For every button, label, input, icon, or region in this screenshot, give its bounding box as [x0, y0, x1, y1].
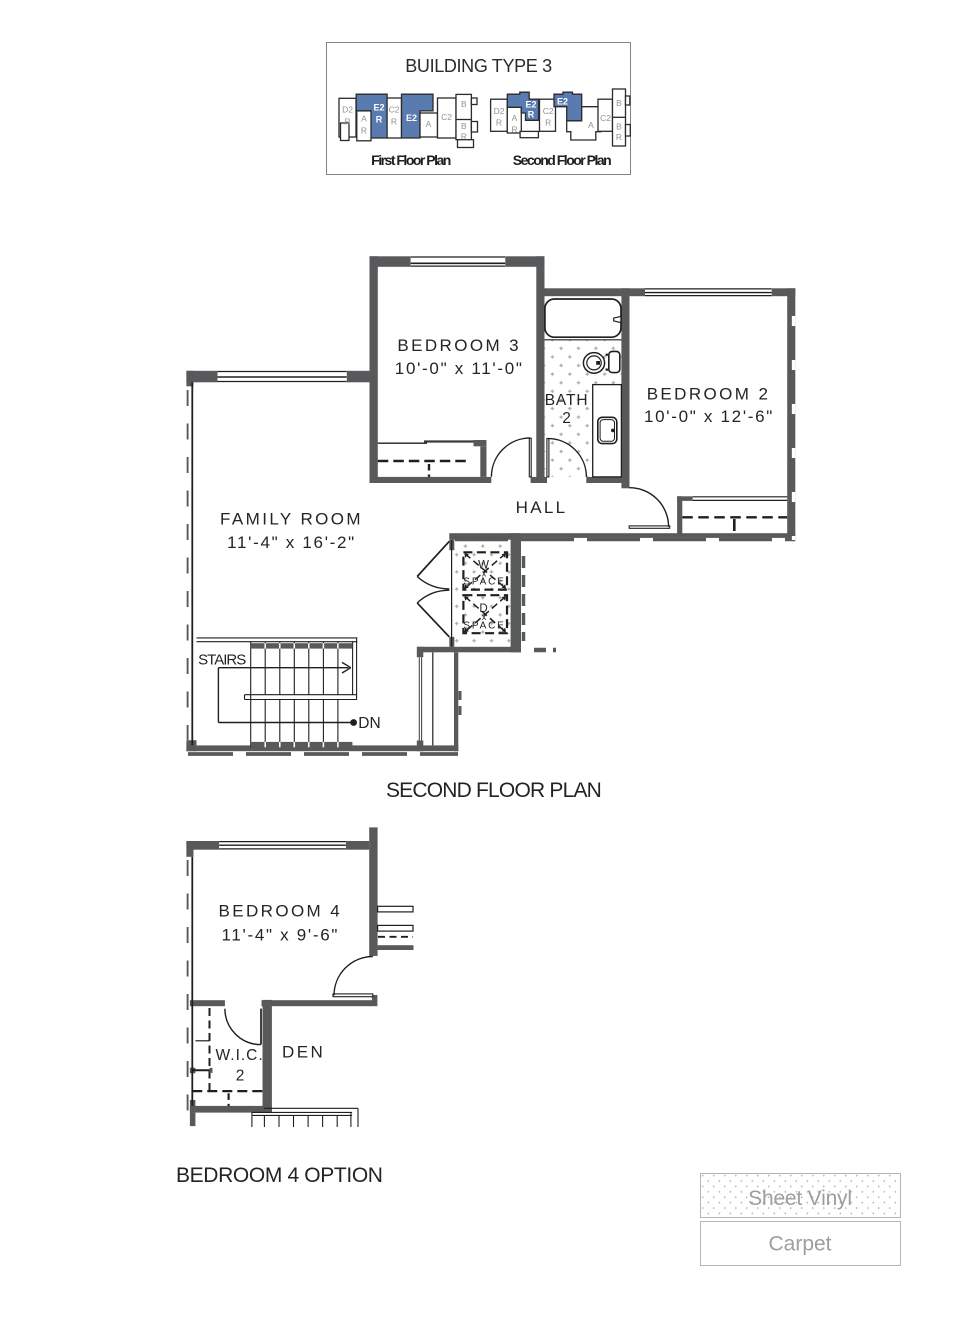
- svg-text:BATH: BATH: [545, 392, 589, 409]
- svg-text:E2: E2: [557, 97, 568, 107]
- svg-text:C2: C2: [543, 106, 554, 116]
- svg-text:D2: D2: [342, 105, 353, 115]
- svg-text:HALL: HALL: [516, 498, 568, 517]
- svg-text:R: R: [344, 117, 350, 127]
- svg-text:D2: D2: [494, 106, 505, 116]
- svg-text:E2: E2: [406, 113, 417, 123]
- svg-text:R: R: [391, 117, 397, 127]
- svg-text:B: B: [461, 121, 467, 131]
- svg-text:R: R: [616, 132, 622, 142]
- svg-text:SPACE: SPACE: [463, 577, 505, 588]
- svg-text:A: A: [426, 119, 432, 129]
- svg-text:E2: E2: [525, 100, 536, 110]
- svg-text:W.I.C.: W.I.C.: [215, 1047, 263, 1064]
- svg-text:R: R: [528, 110, 535, 120]
- svg-text:BEDROOM 2: BEDROOM 2: [647, 384, 771, 403]
- svg-text:10'-0" x 11'-0": 10'-0" x 11'-0": [395, 359, 524, 378]
- svg-text:R: R: [461, 132, 467, 142]
- svg-text:BEDROOM 4: BEDROOM 4: [218, 901, 342, 920]
- svg-text:BEDROOM 3: BEDROOM 3: [397, 336, 521, 355]
- svg-text:Carpet: Carpet: [768, 1233, 831, 1256]
- svg-text:R: R: [496, 118, 502, 128]
- svg-text:C2: C2: [600, 113, 611, 123]
- svg-text:C2: C2: [389, 105, 400, 115]
- svg-text:SPACE: SPACE: [463, 621, 505, 632]
- svg-text:FAMILY ROOM: FAMILY ROOM: [220, 510, 363, 529]
- svg-text:11'-4" x 16'-2": 11'-4" x 16'-2": [227, 533, 356, 552]
- svg-text:B: B: [461, 99, 467, 109]
- svg-text:2: 2: [236, 1067, 245, 1084]
- svg-text:R: R: [511, 125, 517, 135]
- svg-text:A: A: [588, 120, 594, 130]
- svg-text:STAIRS: STAIRS: [198, 652, 246, 669]
- svg-text:B: B: [616, 98, 622, 108]
- svg-text:R: R: [376, 115, 383, 125]
- svg-text:A: A: [361, 114, 367, 124]
- svg-text:E2: E2: [373, 103, 384, 113]
- svg-text:R: R: [361, 126, 367, 136]
- svg-text:DEN: DEN: [282, 1043, 325, 1062]
- svg-text:B: B: [616, 122, 622, 132]
- svg-text:C2: C2: [441, 112, 452, 122]
- svg-text:DN: DN: [358, 715, 380, 732]
- svg-text:2: 2: [562, 410, 571, 427]
- svg-text:A: A: [512, 113, 518, 123]
- svg-text:10'-0" x 12'-6": 10'-0" x 12'-6": [644, 407, 774, 426]
- svg-text:R: R: [545, 118, 551, 128]
- svg-text:Sheet Vinyl: Sheet Vinyl: [748, 1187, 852, 1210]
- svg-text:11'-4" x 9'-6": 11'-4" x 9'-6": [221, 926, 339, 945]
